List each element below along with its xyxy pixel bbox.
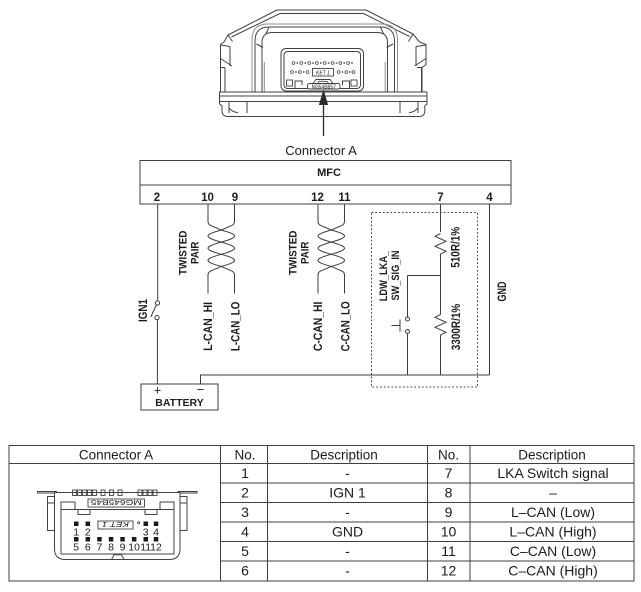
svg-text:Description: Description [310, 448, 378, 463]
svg-text:GND: GND [332, 524, 363, 540]
svg-text:6: 6 [241, 563, 249, 579]
svg-text:3300R/1%: 3300R/1% [451, 304, 463, 351]
svg-text:4: 4 [486, 192, 493, 204]
svg-text:7: 7 [445, 465, 453, 481]
svg-text:SW_SIG_IN: SW_SIG_IN [390, 250, 402, 300]
svg-text:2: 2 [154, 192, 160, 204]
svg-text:8: 8 [445, 485, 453, 501]
svg-text:LDW_LKA_: LDW_LKA_ [378, 250, 390, 301]
svg-text:4: 4 [153, 527, 159, 539]
svg-text:11: 11 [338, 192, 351, 204]
svg-text:L-CAN_LO: L-CAN_LO [230, 302, 242, 352]
svg-text:12: 12 [150, 542, 162, 554]
svg-text:10: 10 [441, 524, 457, 540]
svg-text:L-CAN_HI: L-CAN_HI [203, 302, 215, 351]
svg-text:11: 11 [441, 543, 456, 559]
svg-text:GND: GND [495, 281, 509, 301]
svg-text:9: 9 [232, 192, 238, 204]
svg-text:12: 12 [311, 192, 324, 204]
svg-text:3: 3 [143, 527, 149, 539]
svg-text:1: 1 [73, 527, 79, 539]
svg-text:MG645B45: MG645B45 [91, 498, 142, 507]
svg-text:Description: Description [518, 448, 586, 463]
svg-text:PAIR: PAIR [189, 242, 201, 265]
svg-text:510R/1%: 510R/1% [451, 227, 463, 268]
svg-text:PAIR: PAIR [299, 242, 311, 265]
svg-text:KET 1: KET 1 [102, 520, 129, 527]
svg-text:-: - [345, 543, 350, 559]
svg-text:C-CAN_HI: C-CAN_HI [313, 302, 325, 352]
svg-text:7: 7 [96, 542, 102, 554]
svg-text:10: 10 [201, 192, 214, 204]
svg-text:2: 2 [241, 485, 249, 501]
svg-text:1: 1 [241, 465, 249, 481]
svg-text:IGN 1: IGN 1 [329, 485, 366, 501]
svg-text:IGN1: IGN1 [136, 299, 150, 322]
svg-text:8: 8 [108, 542, 114, 554]
svg-text:C–CAN (Low): C–CAN (Low) [510, 543, 596, 559]
svg-text:5: 5 [241, 543, 249, 559]
svg-text:TWISTED: TWISTED [177, 231, 189, 276]
svg-text:BATTERY: BATTERY [155, 397, 203, 409]
svg-text:−: − [197, 382, 205, 397]
svg-text:6: 6 [85, 542, 91, 554]
svg-text:No.: No. [234, 448, 255, 463]
svg-text:KET 1: KET 1 [316, 70, 330, 76]
svg-text:MFC: MFC [317, 167, 341, 179]
svg-text:2: 2 [85, 527, 91, 539]
svg-text:3: 3 [241, 504, 249, 520]
svg-text:4: 4 [241, 524, 249, 540]
svg-text:–: – [549, 485, 557, 501]
svg-text:5: 5 [73, 542, 79, 554]
svg-text:10: 10 [128, 542, 140, 554]
svg-text:TWISTED: TWISTED [287, 231, 299, 276]
svg-text:L–CAN (Low): L–CAN (Low) [511, 504, 595, 520]
svg-text:Connector A: Connector A [285, 143, 357, 158]
svg-text:9: 9 [120, 542, 126, 554]
svg-text:-: - [345, 563, 350, 579]
svg-text:-: - [345, 504, 350, 520]
svg-text:C–CAN (High): C–CAN (High) [508, 563, 597, 579]
svg-text:L–CAN (High): L–CAN (High) [509, 524, 596, 540]
svg-text:-: - [345, 465, 350, 481]
svg-text:LKA Switch signal: LKA Switch signal [497, 465, 608, 481]
svg-text:C-CAN_LO: C-CAN_LO [340, 301, 352, 351]
svg-text:+: + [154, 384, 161, 398]
svg-text:9: 9 [445, 504, 453, 520]
svg-text:No.: No. [438, 448, 459, 463]
svg-text:M354B857: M354B857 [312, 84, 336, 90]
svg-text:Connector A: Connector A [79, 448, 153, 463]
svg-text:12: 12 [441, 563, 457, 579]
svg-text:7: 7 [437, 192, 443, 204]
